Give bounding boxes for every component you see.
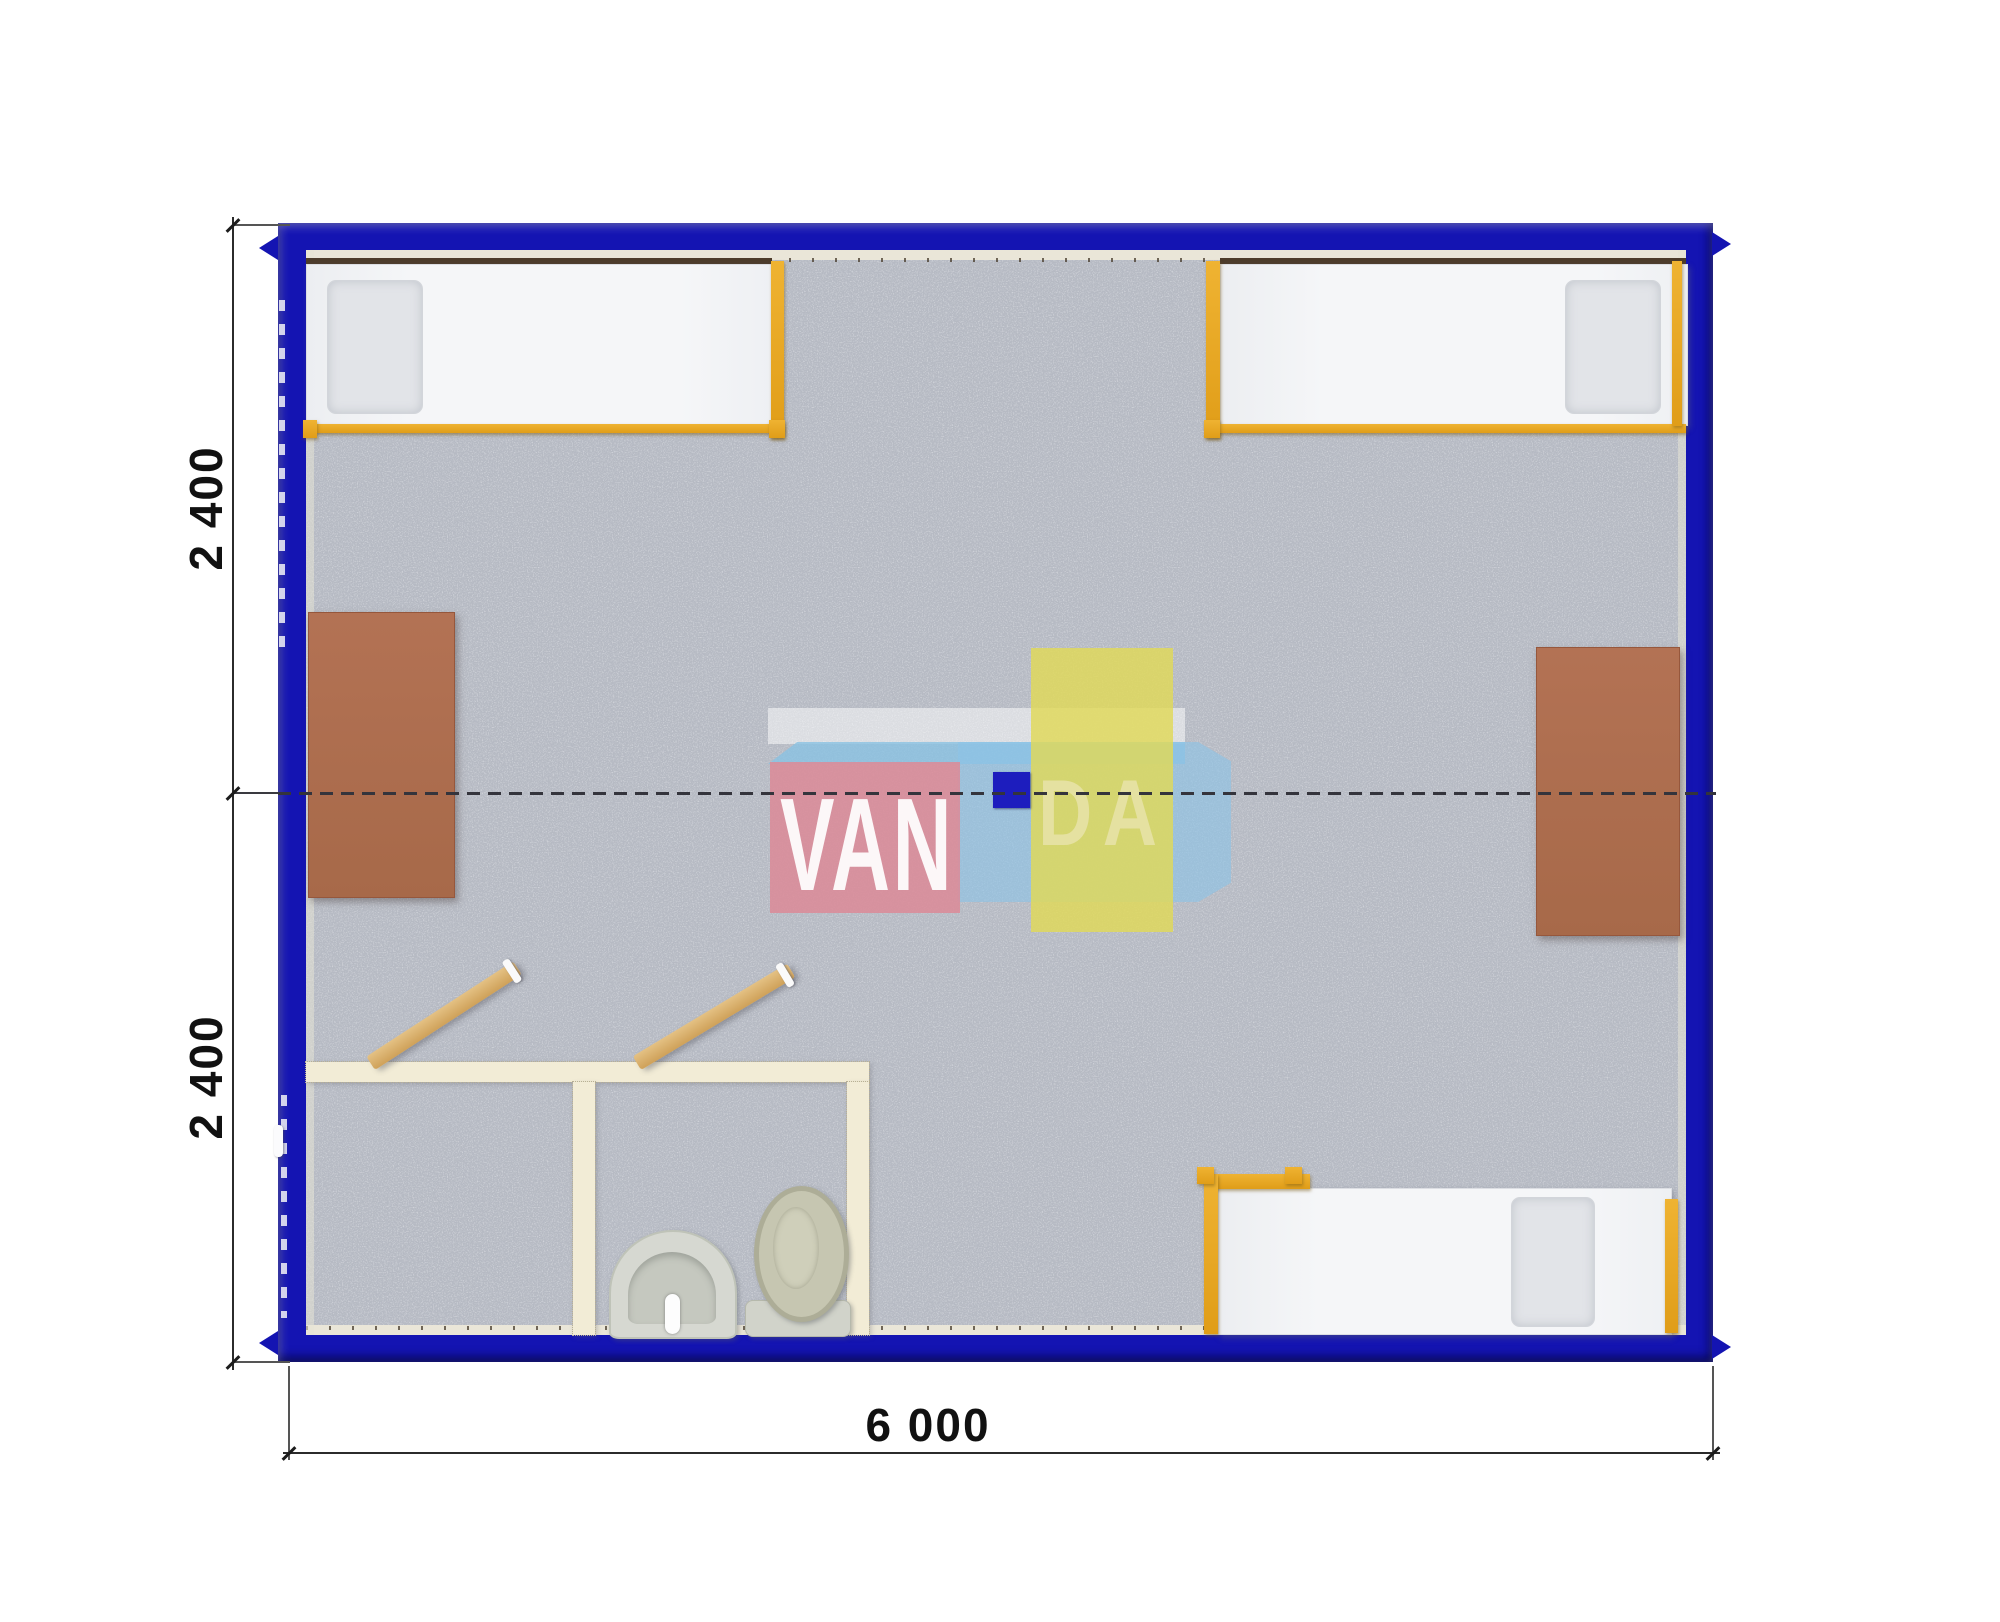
left-wall-window-marking [279, 300, 285, 650]
bathroom-wall-north [306, 1062, 869, 1082]
module-split-centerline [278, 792, 1716, 795]
bed-top-left-frame-rail [306, 424, 784, 433]
corner-casting-top-left [259, 236, 278, 260]
bed-top-right-frame-wallside [1672, 261, 1682, 426]
bed-top-left-frame-foot-left [303, 420, 317, 438]
watermark-text-da: DA [1038, 770, 1167, 856]
extension-line-top-left [233, 224, 290, 226]
extension-line-bottom-left [233, 1361, 290, 1363]
toilet [754, 1186, 849, 1322]
desk-left [308, 612, 455, 898]
extension-line-bottom-start [288, 1366, 290, 1460]
bed-top-left-frame-end [771, 261, 784, 438]
bed-bottom-right [1218, 1188, 1672, 1335]
bed-bottom-right-frame-post-1 [1197, 1167, 1214, 1184]
floor-plan-canvas: VAN DA 2 400 2 400 6 000 [0, 0, 2000, 1622]
extension-line-bottom-end [1712, 1366, 1714, 1460]
bed-bottom-right-frame-wallside [1665, 1199, 1678, 1333]
bathroom-wall-divider [573, 1082, 595, 1335]
bed-top-left-frame-foot-right [769, 420, 785, 438]
bed-bottom-right-pillow [1511, 1197, 1595, 1327]
entry-door-handle [274, 1125, 283, 1157]
bed-top-left-pillow [327, 280, 423, 414]
dimension-label-left-top: 2 400 [181, 368, 231, 648]
bed-top-right-frame-foot-left [1204, 420, 1220, 438]
bed-top-right-frame-end [1206, 261, 1220, 438]
corner-casting-bottom-left [259, 1331, 278, 1355]
corner-casting-bottom-right [1712, 1335, 1731, 1359]
centerline-stub [233, 792, 278, 794]
watermark-text-van: VAN [780, 790, 954, 900]
toilet-lid [773, 1207, 819, 1289]
dimension-label-bottom: 6 000 [788, 1400, 1068, 1450]
bed-bottom-right-frame-post-2 [1285, 1167, 1302, 1184]
bed-top-right-pillow [1565, 280, 1661, 414]
corner-casting-top-right [1712, 232, 1731, 256]
sink-faucet [665, 1294, 680, 1334]
dimension-line-bottom [283, 1452, 1720, 1454]
bed-top-right-frame-rail [1206, 424, 1686, 433]
bed-bottom-right-frame-end [1204, 1174, 1218, 1334]
dimension-label-left-bottom: 2 400 [181, 937, 231, 1217]
bathroom-wall-east [847, 1082, 869, 1335]
watermark-navy-square [993, 772, 1030, 808]
